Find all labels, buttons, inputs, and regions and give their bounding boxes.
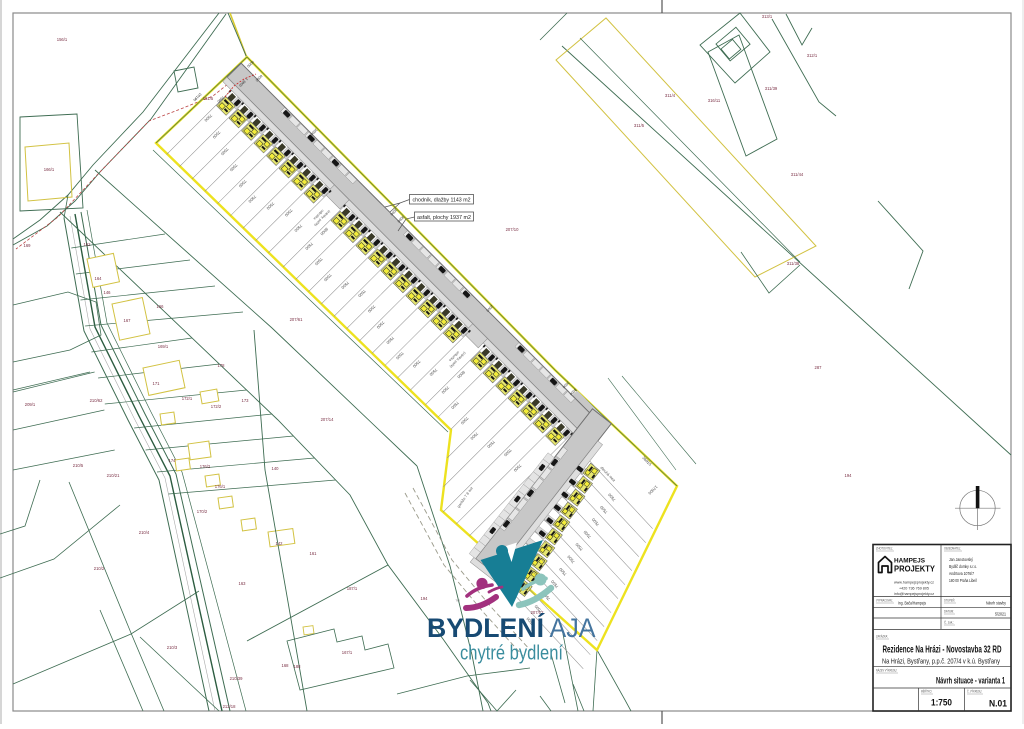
svg-text:210/2: 210/2 (94, 566, 105, 571)
svg-text:OBJEDNATEL:: OBJEDNATEL: (944, 547, 961, 551)
svg-text:140: 140 (272, 466, 280, 471)
svg-text:HAMPEJS: HAMPEJS (894, 558, 925, 565)
svg-text:169: 169 (24, 243, 32, 248)
svg-text:5/2021: 5/2021 (995, 612, 1006, 617)
svg-text:146: 146 (104, 290, 112, 295)
svg-text:BYDLENÍ: BYDLENÍ (427, 612, 545, 643)
svg-text:142: 142 (276, 541, 284, 546)
svg-text:161/5: 161/5 (203, 96, 214, 101)
svg-text:210/62: 210/62 (90, 398, 103, 403)
svg-text:Rezidence Na Hrázi - Novostavb: Rezidence Na Hrázi - Novostavba 32 RD (883, 645, 1002, 656)
svg-text:166/1: 166/1 (44, 167, 55, 172)
svg-text:161: 161 (310, 551, 318, 556)
svg-text:Na Hrázi, Bystřany, p.p.č. 207: Na Hrázi, Bystřany, p.p.č. 207/4 v k.ú. … (882, 657, 1000, 666)
svg-text:312/1: 312/1 (807, 53, 818, 58)
svg-text:ZHOTOVITEL:: ZHOTOVITEL: (876, 547, 893, 551)
svg-text:171: 171 (153, 381, 161, 386)
svg-text:207/10: 207/10 (506, 227, 519, 232)
svg-text:178: 178 (218, 363, 226, 368)
svg-text:188: 188 (294, 664, 302, 669)
svg-text:163: 163 (239, 581, 247, 586)
svg-text:Ing. Bača/Hampejs: Ing. Bača/Hampejs (898, 601, 926, 606)
svg-text:287: 287 (815, 365, 823, 370)
svg-text:Bydlíč domky s.r.o.: Bydlíč domky s.r.o. (949, 564, 977, 569)
svg-text:172/1: 172/1 (182, 396, 193, 401)
svg-text:Andrtova 1076/7: Andrtova 1076/7 (949, 571, 974, 576)
svg-text:168: 168 (282, 663, 290, 668)
svg-text:asfalt, plochy 1937 m2: asfalt, plochy 1937 m2 (417, 215, 471, 221)
svg-text:212/18: 212/18 (223, 704, 236, 709)
svg-text:311/39: 311/39 (765, 86, 778, 91)
svg-text:194: 194 (421, 596, 429, 601)
svg-text:311/5: 311/5 (634, 123, 645, 128)
svg-text:316/11: 316/11 (708, 98, 721, 103)
svg-text:210/3: 210/3 (167, 645, 178, 650)
svg-text:Návrh situace - varianta 1: Návrh situace - varianta 1 (936, 675, 1005, 686)
svg-text:info@hampejsprojekty.cz: info@hampejsprojekty.cz (894, 591, 934, 596)
svg-text:167: 167 (124, 318, 132, 323)
svg-text:180 00 Praha Libeň: 180 00 Praha Libeň (949, 578, 977, 583)
svg-text:DATUM:: DATUM: (944, 610, 954, 614)
svg-text:173: 173 (242, 398, 250, 403)
svg-text:Č. zak.:: Č. zak.: (944, 620, 954, 625)
svg-text:311/38: 311/38 (787, 261, 800, 266)
svg-text:1:750: 1:750 (931, 698, 952, 709)
svg-text:209/1: 209/1 (25, 402, 36, 407)
svg-text:MĚŘÍTKO:: MĚŘÍTKO: (921, 689, 932, 694)
svg-text:+420 736 769 805: +420 736 769 805 (899, 586, 929, 591)
svg-text:210/4: 210/4 (139, 530, 150, 535)
svg-text:176/2: 176/2 (200, 464, 211, 469)
svg-text:www.hampejsprojekty.cz: www.hampejsprojekty.cz (894, 580, 934, 585)
svg-text:166: 166 (157, 304, 165, 309)
svg-text:164: 164 (95, 276, 103, 281)
svg-text:Č. VÝKRESU:: Č. VÝKRESU: (967, 689, 982, 694)
svg-text:207/61: 207/61 (290, 317, 303, 322)
svg-text:Jan Janotovský: Jan Janotovský (949, 557, 974, 562)
svg-text:311/44: 311/44 (791, 172, 804, 177)
svg-text:AJA: AJA (550, 613, 596, 643)
svg-text:chytré bydlení: chytré bydlení (460, 643, 563, 665)
svg-text:VYPRACOVAL:: VYPRACOVAL: (876, 599, 893, 603)
svg-text:207/14: 207/14 (321, 417, 334, 422)
svg-text:194: 194 (845, 473, 853, 478)
svg-text:ZAKÁZKA:: ZAKÁZKA: (876, 635, 888, 639)
svg-text:NÁZEV VÝKRESU:: NÁZEV VÝKRESU: (876, 669, 897, 673)
svg-text:313/1: 313/1 (762, 14, 773, 19)
svg-text:™: ™ (455, 599, 460, 605)
svg-text:chodník, dlažby 1143 m2: chodník, dlažby 1143 m2 (413, 198, 471, 204)
svg-text:170/2: 170/2 (197, 509, 208, 514)
svg-text:PROJEKTY: PROJEKTY (894, 565, 935, 574)
svg-text:167/1: 167/1 (342, 650, 353, 655)
svg-text:187/1: 187/1 (347, 586, 358, 591)
svg-text:172/2: 172/2 (211, 404, 222, 409)
svg-text:210/5: 210/5 (73, 463, 84, 468)
svg-text:210/39: 210/39 (230, 676, 243, 681)
svg-text:174: 174 (169, 458, 177, 463)
svg-text:162: 162 (84, 242, 92, 247)
svg-text:STUPEŇ:: STUPEŇ: (944, 598, 955, 603)
svg-text:N.01: N.01 (989, 699, 1008, 710)
svg-text:311/4: 311/4 (665, 93, 676, 98)
svg-text:Návrh stavby: Návrh stavby (986, 601, 1007, 606)
svg-text:176/1: 176/1 (215, 484, 226, 489)
svg-text:210/21: 210/21 (107, 473, 120, 478)
svg-text:169/1: 169/1 (158, 344, 169, 349)
svg-text:156/1: 156/1 (57, 37, 68, 42)
